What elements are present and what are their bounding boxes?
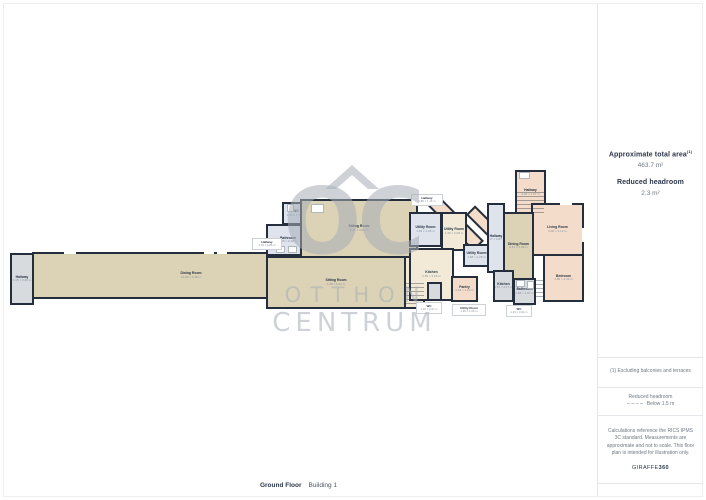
sidebar-line-4 — [597, 483, 703, 484]
fixture — [311, 204, 324, 213]
building-label: Building 1 — [308, 482, 337, 489]
dimension-callout: Utility Room1.96 × 1.06 m — [452, 304, 486, 316]
fixture — [288, 246, 297, 253]
wall-opening — [217, 250, 227, 254]
room-pantry: Pantry1.18 × 1.10 m — [451, 276, 478, 302]
reduced-headroom-value: 2.3 m² — [598, 190, 703, 197]
legend-row: Below 1.5 m — [627, 401, 675, 409]
dimension-callout: Hallway1.85 × 1.16 m — [411, 194, 443, 206]
wall-opening — [204, 250, 214, 254]
fixture — [519, 172, 530, 179]
legend-value: Below 1.5 m — [647, 401, 675, 407]
room-dimensions: 1.68 × 1.87 m — [515, 292, 533, 296]
dimension-callout: WC1.16 × 0.97 m — [416, 302, 442, 314]
brand-logo: GIRAFFE360 — [632, 465, 669, 471]
room-bedroom: Bedroom4.86 × 4.43 m — [543, 254, 584, 302]
room-dimensions: 1.18 × 1.10 m — [455, 289, 473, 293]
legend-title: Reduced headroom — [629, 394, 673, 402]
room-corridor-long: Dining Room21.05 × 3.48 m — [32, 252, 270, 299]
footer: Ground FloorBuilding 1 — [0, 482, 597, 489]
room-dimensions: 5.00 × 4.12 m — [548, 230, 566, 234]
stairs — [536, 280, 545, 300]
room-dimensions: 2.55 × 3.26 m — [422, 275, 440, 279]
room-dimensions: 1.83 × 1.95 m — [416, 230, 434, 234]
area-summary: Approximate total area(1) 463.7 m² Reduc… — [598, 149, 703, 197]
room-dimensions: 1.58 × 1.28 m — [467, 256, 485, 260]
callout-dimensions: 1.85 × 1.16 m — [418, 200, 435, 203]
callout-dimensions: 1.33 × 0.94 m — [510, 311, 527, 314]
room-wc-center — [427, 282, 442, 301]
wall-opening — [560, 201, 572, 205]
stairs — [517, 192, 544, 213]
footnote-text: (1) Excluding balconies and terraces — [610, 368, 691, 376]
room-dimensions: 6.21 × 4.90 m — [350, 229, 368, 233]
reduced-headroom-label: Reduced headroom — [598, 179, 703, 186]
fixture — [516, 280, 525, 287]
room-sitting-room-lower: Sitting Room4.38 × 5.42 m — [266, 256, 406, 309]
room-hallway-right: Hallway1.17 × 6.87 m — [487, 203, 505, 273]
wall-opening — [64, 250, 76, 254]
floor-label: Ground Floor — [260, 482, 302, 489]
room-dimensions: 21.05 × 3.48 m — [181, 276, 201, 280]
room-dimensions: 1.17 × 6.87 m — [487, 238, 505, 242]
legend-box: Reduced headroom Below 1.5 m — [598, 387, 703, 415]
room-dimensions: 1.57 × 2.17 m — [494, 286, 512, 290]
fixture — [527, 281, 534, 289]
dimension-callout: WC1.33 × 0.94 m — [506, 305, 532, 317]
footnote-box: (1) Excluding balconies and terraces — [598, 357, 703, 387]
wall-opening — [582, 228, 586, 242]
room-dimensions: 1.05 × 3.29 m — [13, 279, 31, 283]
disclaimer-box: Calculations reference the RICS IPMS 3C … — [598, 415, 703, 483]
room-dimensions: 4.38 × 5.42 m — [327, 283, 345, 287]
room-dimensions: 1.36 × 2.08 m — [445, 232, 463, 236]
fixture — [287, 204, 294, 212]
room-dimensions: 2.41 × 4.09 m — [509, 246, 527, 250]
callout-dimensions: 1.96 × 1.06 m — [460, 310, 477, 313]
room-kitchen-right: Kitchen1.57 × 2.17 m — [493, 270, 514, 302]
disclaimer-text: Calculations reference the RICS IPMS 3C … — [605, 428, 697, 458]
callout-dimensions: 1.16 × 0.97 m — [420, 308, 437, 311]
room-hallway-far-left: Hallway1.05 × 3.29 m — [10, 253, 34, 305]
total-area-value: 463.7 m² — [598, 162, 703, 169]
room-utility-room-3: Utility Room1.58 × 1.28 m — [463, 244, 490, 267]
room-utility-room-1: Utility Room1.83 × 1.95 m — [409, 212, 442, 247]
total-area-footnote-marker: (1) — [687, 149, 692, 154]
dimension-callout: Hallway1.94 × 0.86 m — [252, 238, 282, 250]
callout-dimensions: 1.94 × 0.86 m — [258, 244, 275, 247]
total-area-label: Approximate total area(1) — [598, 149, 703, 158]
room-dimensions: 4.86 × 4.43 m — [554, 278, 572, 282]
dashed-line-icon — [627, 403, 643, 405]
